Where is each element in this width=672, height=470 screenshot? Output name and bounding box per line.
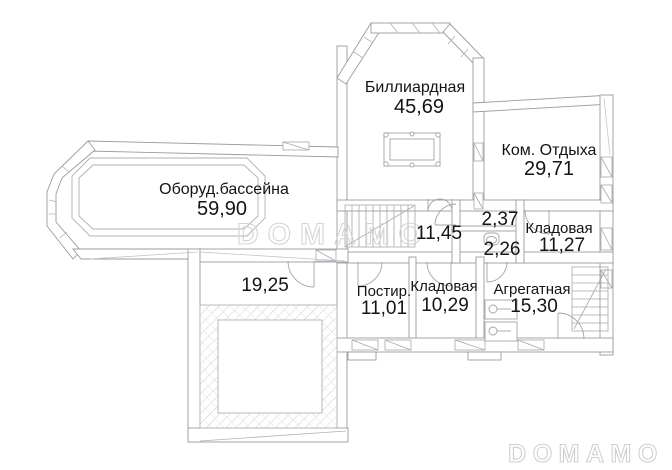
- door-226: [487, 262, 507, 282]
- floor-plan-page: DOMAMO DOMAMO Биллиардная 45,69 Ком. Отд…: [0, 0, 672, 470]
- wall-pool-chamfer: [47, 141, 95, 259]
- wall-bay-top: [371, 23, 450, 33]
- watermark-center: DOMAMO: [237, 218, 431, 251]
- pool-void-hatch: [200, 305, 346, 441]
- watermark-bottom-right: DOMAMO: [508, 440, 664, 468]
- room-label-1925-area: 19,25: [241, 276, 289, 296]
- room-label-lounge-area: 29,71: [524, 159, 574, 180]
- room-label-laundry-area: 11,01: [361, 299, 407, 319]
- billiard-table-icon: [384, 132, 440, 167]
- window-sill: [348, 352, 376, 360]
- room-label-hall-area: 11,45: [416, 224, 462, 244]
- room-label-storage1029-name: Кладовая: [410, 279, 477, 295]
- room-label-pool-name: Оборуд.бассейна: [159, 182, 289, 199]
- room-label-pool-area: 59,90: [197, 199, 247, 220]
- wall-storage-divider: [476, 257, 484, 340]
- room-label-storage1029-area: 10,29: [421, 296, 469, 316]
- wall-pool-bottom: [73, 249, 200, 259]
- room-label-storage1127-area: 11,27: [539, 236, 585, 256]
- room-label-billiard-area: 45,69: [394, 97, 444, 118]
- room-label-237-area: 2,37: [482, 210, 519, 230]
- wall-billiard-right: [473, 58, 484, 211]
- window-sill: [468, 352, 501, 360]
- room-label-billiard-name: Биллиардная: [365, 80, 465, 97]
- wall-void-left: [188, 249, 200, 442]
- door-1925: [288, 261, 314, 287]
- room-label-226-area: 2,26: [484, 240, 521, 260]
- wall-right-exterior: [600, 95, 613, 355]
- wall-lounge-top: [473, 95, 612, 112]
- room-label-aggregate-area: 15,30: [510, 297, 558, 317]
